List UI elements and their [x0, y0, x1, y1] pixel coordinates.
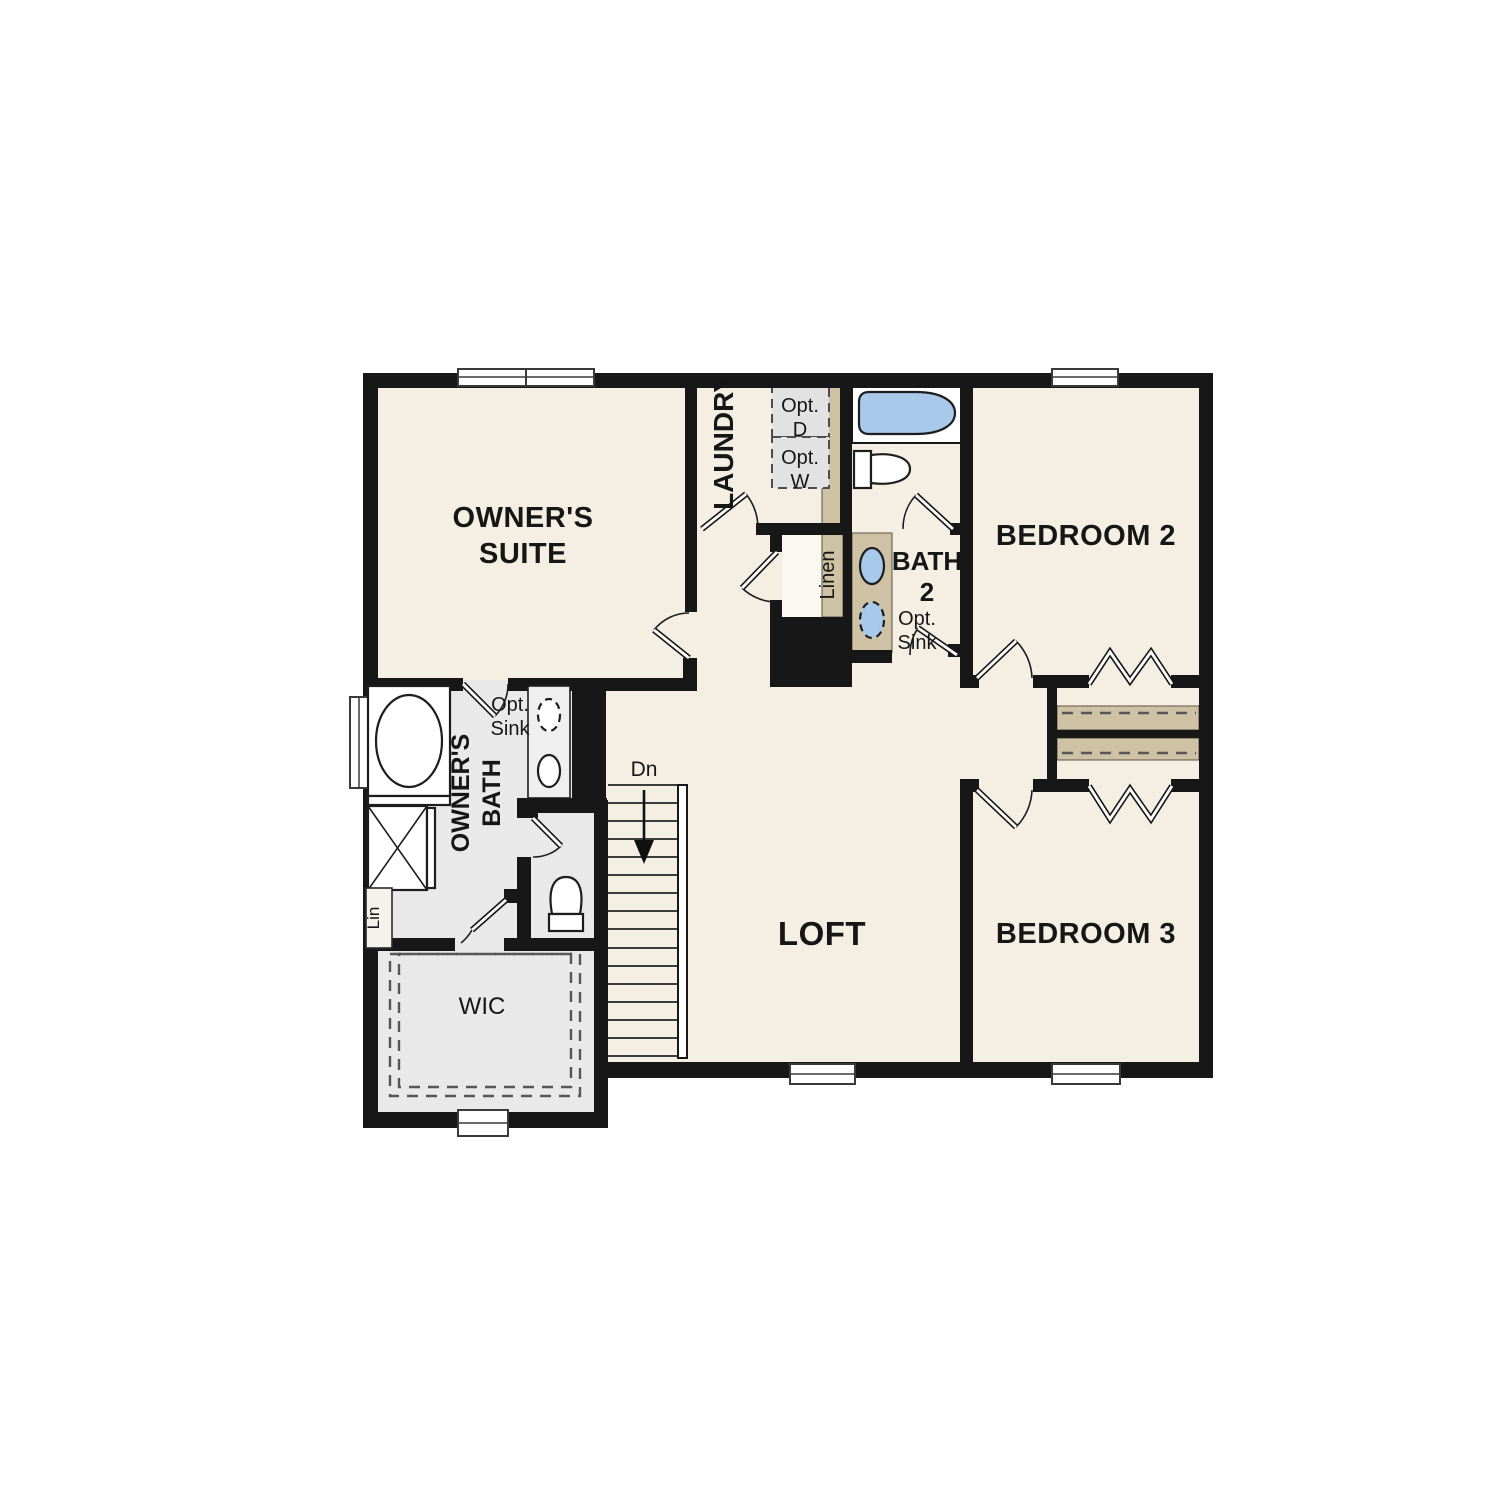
sink-icon — [538, 755, 560, 787]
label-owners-bath-2: BATH — [478, 759, 506, 827]
label-bath2-2: 2 — [920, 577, 934, 607]
label-owners-opt-sink-2: Sink — [491, 718, 531, 740]
optional-sink-icon — [538, 699, 560, 731]
wall-exterior-right — [1199, 373, 1213, 1078]
tub-basin — [376, 695, 442, 787]
label-owners-bath-1: OWNER'S — [447, 734, 475, 852]
tub-ledge — [368, 796, 450, 805]
bedroom3-closet-shelf — [1057, 738, 1199, 760]
wall-suite-right — [685, 385, 697, 612]
label-owners-suite-1: OWNER'S — [453, 502, 594, 534]
wall-wc-top — [527, 798, 607, 813]
toilet-bowl — [871, 454, 910, 484]
optional-sink-icon — [860, 602, 884, 638]
label-opt-dryer-2: D — [793, 419, 807, 441]
bathtub-icon — [859, 392, 955, 434]
wall-bedroom3-top-c — [1171, 779, 1213, 792]
toilet-bowl — [551, 877, 582, 914]
toilet-tank — [549, 914, 583, 931]
wall-wc-left — [517, 857, 531, 950]
label-bath2-opt-sink-2: Sink — [898, 632, 938, 654]
label-opt-washer-2: W — [791, 471, 810, 493]
shower-icon — [368, 806, 435, 890]
toilet-icon — [549, 877, 583, 931]
wall-bedroom2-left — [960, 385, 973, 688]
wall-closet-divider — [1047, 675, 1057, 792]
label-bedroom3: BEDROOM 3 — [996, 918, 1176, 950]
wall-stair-left — [594, 800, 608, 1112]
wall-suite-door-jamb — [683, 658, 697, 691]
label-bath2-opt-sink-1: Opt. — [898, 608, 936, 630]
label-opt-dryer-1: Opt. — [781, 395, 819, 417]
floor-plan-page: OWNER'S SUITE LAUNDRY Opt. D Opt. W BEDR… — [0, 0, 1500, 1500]
wall-bedroom2-bottom-b — [1033, 675, 1089, 688]
label-bath2-1: BATH — [892, 546, 962, 576]
shower-glass — [427, 808, 435, 888]
label-loft: LOFT — [778, 915, 866, 952]
chase-owners-bath — [572, 678, 606, 804]
garden-tub-icon — [368, 686, 450, 805]
wall-bedroom3-top-b — [1033, 779, 1089, 792]
label-stairs-down: Dn — [631, 758, 658, 781]
bedroom2-closet-shelf — [1057, 706, 1199, 730]
label-lin: Lin — [364, 907, 383, 930]
label-linen: Linen — [817, 551, 839, 600]
wall-wic-top-right — [504, 938, 608, 951]
wall-bath2-vanity-bottom — [850, 650, 892, 663]
wall-bedroom3-left — [960, 779, 973, 1078]
label-owners-suite-2: SUITE — [479, 538, 567, 570]
label-wic: WIC — [459, 993, 506, 1020]
floor-plan-drawing: OWNER'S SUITE LAUNDRY Opt. D Opt. W BEDR… — [0, 0, 1500, 1500]
wall-closet-middle — [1057, 730, 1199, 738]
stair-railing — [678, 785, 687, 1058]
label-owners-opt-sink-1: Opt. — [491, 694, 529, 716]
label-bedroom2: BEDROOM 2 — [996, 520, 1176, 552]
chase-hall — [770, 617, 852, 687]
label-laundry: LAUNDRY — [708, 374, 739, 510]
wall-linen-jamb-top — [770, 532, 782, 552]
wall-wc-corner — [517, 798, 538, 818]
wall-laundry-bath2 — [840, 385, 852, 523]
label-opt-washer-1: Opt. — [781, 447, 819, 469]
wall-bedroom2-bottom-c — [1171, 675, 1213, 688]
sink-icon — [860, 548, 884, 584]
toilet-tank — [854, 451, 871, 488]
owners-vanity — [528, 686, 570, 798]
